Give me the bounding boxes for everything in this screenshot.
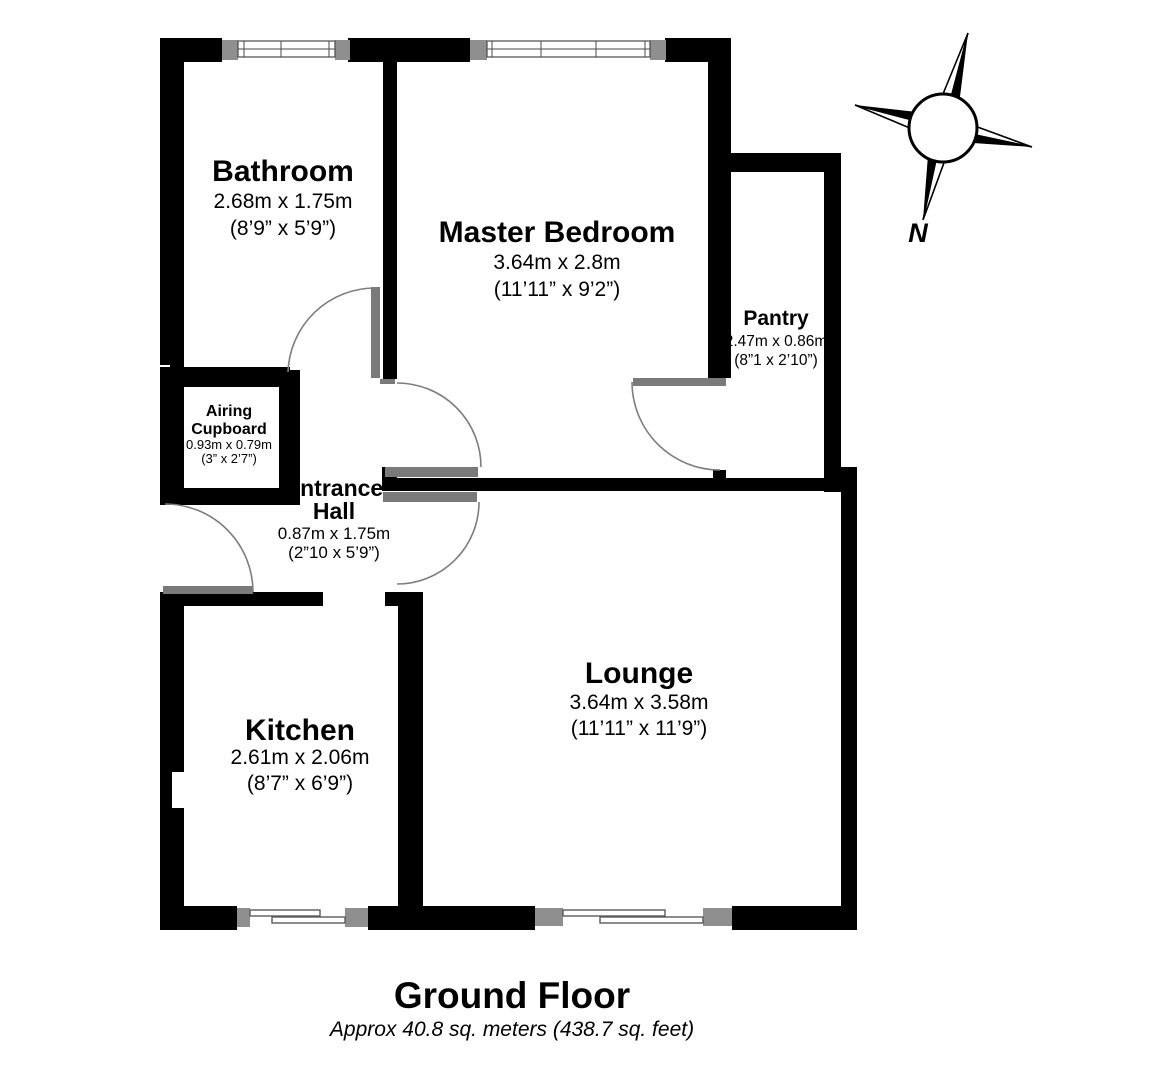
wall-pantry-top [723,153,841,172]
wall-notch-kitchen [172,772,184,808]
window-sash [250,910,320,916]
compass-rose: N [855,33,1032,248]
wall-left-upper [160,38,184,505]
wall-pantry-door-stub [713,470,726,479]
doorjamb-master [380,379,395,384]
window-cap [237,908,250,927]
room-imperial: (8’7” x 6’9”) [247,772,353,795]
room-label-master-bedroom: Master Bedroom 3.64m x 2.8m (11’11” x 9’… [439,216,676,301]
door-bathroom [288,287,380,378]
room-imperial: (11’11” x 9’2”) [494,278,620,301]
window-cap [703,908,732,926]
floor-title-block: Ground Floor Approx 40.8 sq. meters (438… [328,975,694,1041]
room-imperial: (8’9” x 5’9”) [230,217,336,240]
floor-title: Ground Floor [394,975,630,1016]
room-name-line2: Hall [313,498,355,524]
room-name: Bathroom [212,155,354,188]
window-bathroom [222,40,350,60]
room-metric: 3.64m x 2.8m [493,251,620,274]
door-leaf [633,378,726,386]
room-name-line1: Airing [206,403,252,420]
door-leaf [163,586,253,594]
window-cap [470,40,487,60]
door-leaf [383,492,477,502]
window-kitchen [237,908,368,927]
floorplan-drawing: Bathroom 2.68m x 1.75m (8’9” x 5’9”) Mas… [0,0,1156,1080]
wall-pantry-east [824,153,841,492]
room-metric: 2.61m x 2.06m [231,746,370,769]
wall-left-lower [160,592,184,930]
compass-circle [909,94,977,162]
compass-north-label: N [908,218,928,248]
room-label-pantry: Pantry 2.47m x 0.86m (8”1 x 2’10”) [725,307,828,369]
window-cap [335,40,350,60]
wall-lounge-east [841,492,857,930]
window-sash [600,917,703,923]
window-sash [563,910,665,916]
door-leaf [371,287,380,378]
floor-area-subtitle: Approx 40.8 sq. meters (438.7 sq. feet) [328,1018,694,1041]
door-front-entrance [163,504,253,594]
room-label-entrance-hall: Entrance Hall 0.87m x 1.75m (2”10 x 5’9”… [278,475,390,562]
door-swing-arc [288,288,375,372]
wall-lounge-north [388,478,857,491]
door-leaf [385,467,478,477]
room-label-lounge: Lounge 3.64m x 3.58m (11’11” x 11’9”) [570,657,709,740]
wall-bottom-right [732,906,857,930]
wall-kitchen-lounge-divider [398,592,423,930]
room-label-bathroom: Bathroom 2.68m x 1.75m (8’9” x 5’9”) [212,155,354,240]
room-name: Kitchen [245,714,355,747]
room-name-line2: Cupboard [191,421,267,438]
door-swing-arc [397,383,481,467]
wall-bottom-left [160,906,237,930]
wall-kitchen-top-stub [385,592,398,606]
door-master-bedroom [385,383,481,477]
room-imperial: (3” x 2’7”) [201,451,257,466]
door-pantry [632,378,726,470]
room-imperial: (8”1 x 2’10”) [734,352,818,369]
room-label-kitchen: Kitchen 2.61m x 2.06m (8’7” x 6’9”) [231,714,370,795]
wall-top-right [665,38,731,62]
room-name: Lounge [585,657,693,690]
door-swing-arc [397,502,479,584]
door-swing-arc [632,382,720,470]
window-cap [535,908,563,926]
wall-kitchen-top [163,592,323,606]
room-imperial: (11’11” x 11’9”) [571,717,708,740]
window-cap [222,40,238,60]
room-metric: 0.87m x 1.75m [278,524,390,543]
wall-master-east [708,62,731,378]
window-cap [650,40,666,60]
window-sash [272,917,345,923]
room-metric: 0.93m x 0.79m [186,437,272,452]
floorplan-page: Bathroom 2.68m x 1.75m (8’9” x 5’9”) Mas… [0,0,1156,1080]
room-label-airing-cupboard: Airing Cupboard 0.93m x 0.79m (3” x 2’7”… [186,403,272,466]
wall-bottom-mid [368,906,535,930]
room-metric: 2.47m x 0.86m [725,333,828,350]
wall-master-west [383,62,397,379]
door-lounge [383,492,479,584]
door-swing-arc [165,504,253,592]
wall-airing-bottom [163,488,300,505]
room-metric: 2.68m x 1.75m [214,190,353,213]
window-cap [345,908,368,927]
room-name: Pantry [743,307,809,330]
wall-top-mid [348,38,470,62]
window-master-bedroom [470,40,666,60]
window-lounge [535,908,732,926]
room-metric: 3.64m x 3.58m [570,691,709,714]
room-imperial: (2”10 x 5’9”) [288,543,380,562]
room-name: Master Bedroom [439,216,676,249]
